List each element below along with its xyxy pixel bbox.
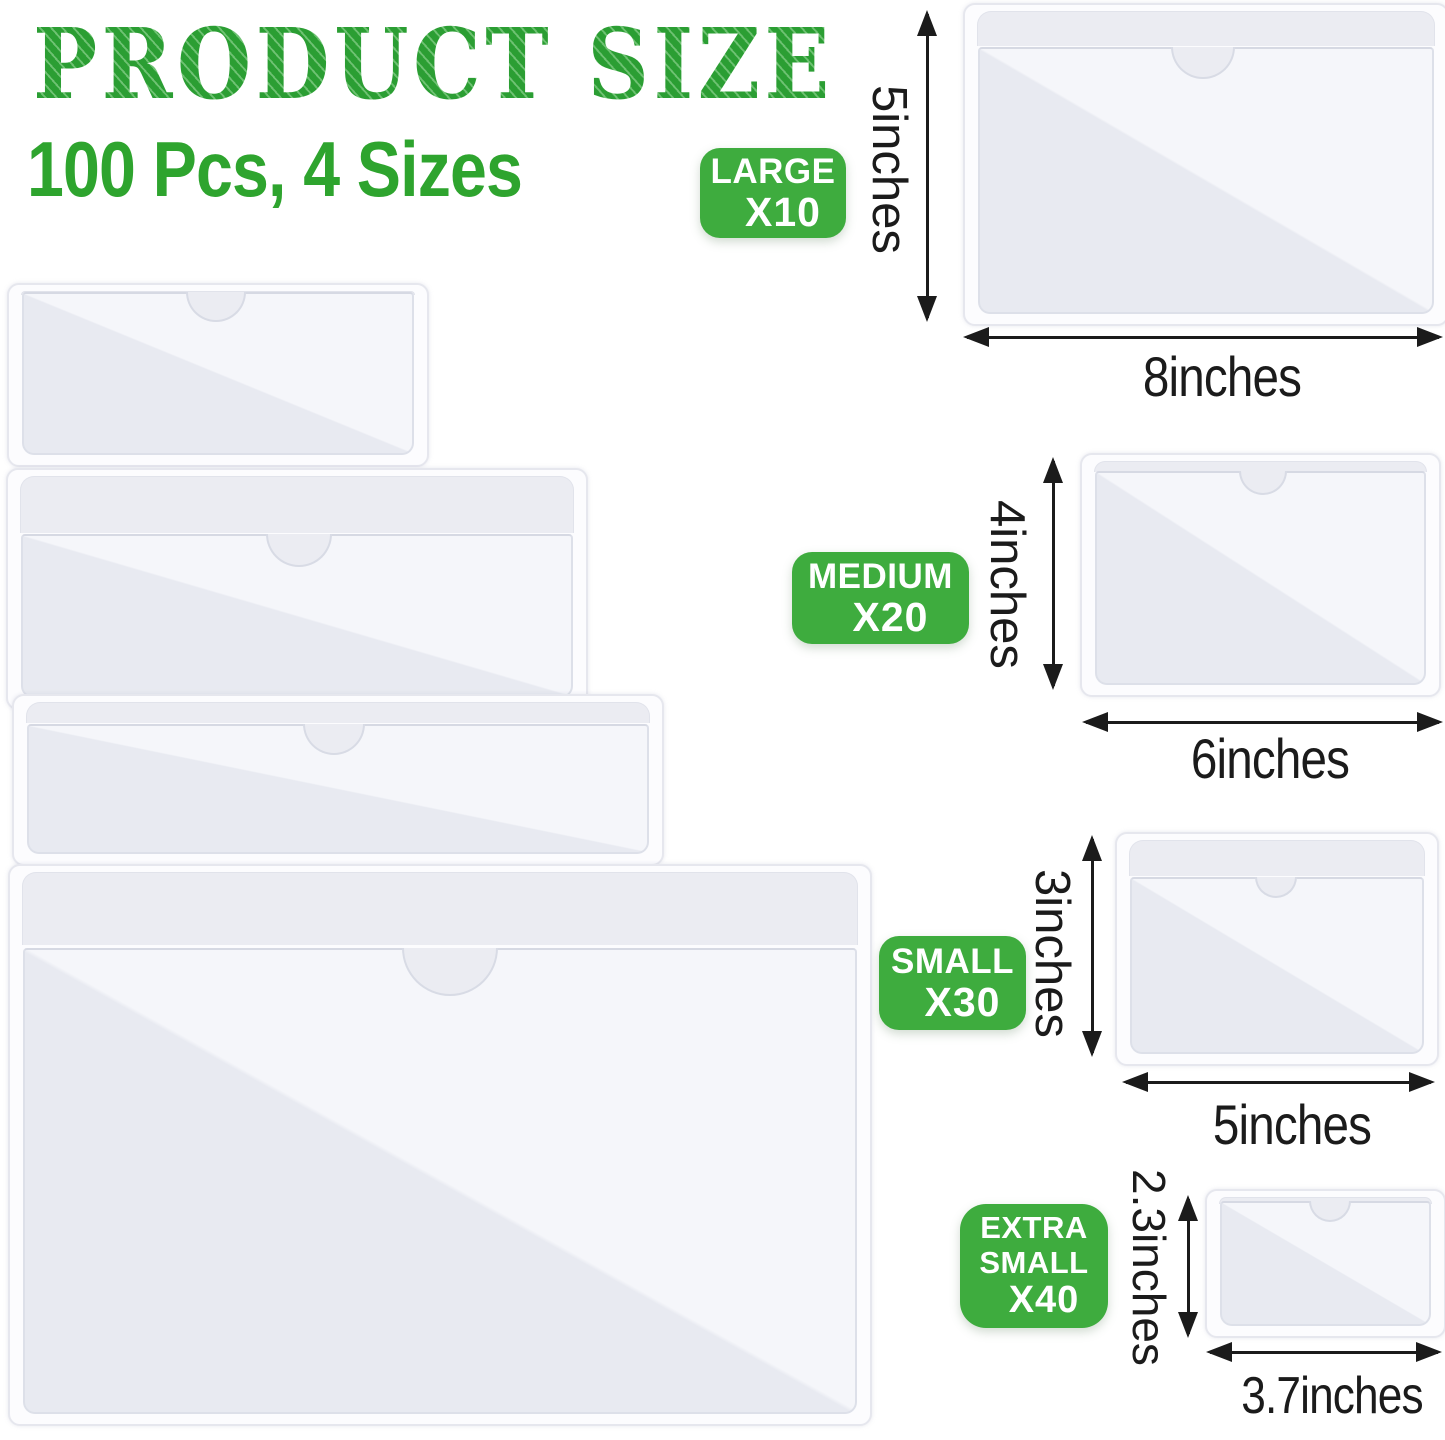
height-dimension-label-medium: 4inches <box>976 498 1038 670</box>
pocket-thumb-notch <box>266 534 332 567</box>
pocket-stack-photo-4 <box>8 864 872 1426</box>
page-title: PRODUCT SIZE <box>33 14 834 116</box>
size-badge-extra-small: EXTRA SMALL X40 <box>960 1204 1108 1328</box>
width-dimension-label-medium: 6inches <box>1100 726 1440 791</box>
vertical-dimension-arrow <box>1042 457 1064 690</box>
vertical-dimension-arrow <box>1177 1195 1199 1338</box>
pocket-front-face <box>978 47 1434 314</box>
pocket-stack-photo-1 <box>7 283 429 467</box>
height-dimension-label-small: 3inches <box>1021 868 1083 1038</box>
size-badge-label: EXTRA <box>980 1211 1088 1246</box>
pocket-diagram-medium <box>1080 453 1441 697</box>
horizontal-dimension-arrow <box>1122 1071 1435 1093</box>
pocket-front-face <box>1130 877 1424 1054</box>
pocket-adhesive-flap <box>977 11 1435 46</box>
width-dimension-label-small: 5inches <box>1122 1092 1445 1157</box>
vertical-dimension-arrow <box>916 10 938 322</box>
size-badge-count: X30 <box>925 981 1001 1024</box>
pocket-front-face <box>21 534 573 698</box>
size-badge-count: X10 <box>745 191 821 234</box>
size-badge-label: LARGE <box>711 152 836 191</box>
pocket-stack-photo-2 <box>6 468 588 710</box>
pocket-diagram-large <box>963 3 1445 326</box>
size-badge-large: LARGE X10 <box>700 148 846 238</box>
pocket-thumb-notch <box>1239 471 1287 495</box>
pocket-front-face <box>23 948 857 1414</box>
pocket-adhesive-flap <box>1129 840 1425 876</box>
pocket-diagram-extra-small <box>1205 1189 1445 1338</box>
pocket-front-face <box>22 292 414 455</box>
pocket-front-face <box>1095 471 1426 685</box>
size-badge-count: X40 <box>1009 1281 1080 1321</box>
horizontal-dimension-arrow <box>1206 1341 1442 1363</box>
pocket-thumb-notch <box>1309 1201 1351 1222</box>
pocket-adhesive-flap <box>26 702 650 723</box>
pocket-front-face <box>1220 1201 1431 1326</box>
pocket-thumb-notch <box>402 948 498 996</box>
subtitle: 100 Pcs, 4 Sizes <box>27 124 522 215</box>
pocket-thumb-notch <box>1171 47 1235 79</box>
vertical-dimension-arrow <box>1081 835 1103 1057</box>
pocket-thumb-notch <box>303 724 365 755</box>
size-badge-label: MEDIUM <box>808 557 953 596</box>
size-badge-medium: MEDIUM X20 <box>792 552 969 644</box>
size-badge-label: SMALL <box>979 1246 1088 1281</box>
pocket-adhesive-flap <box>22 872 858 945</box>
size-badge-count: X20 <box>853 596 929 639</box>
pocket-front-face <box>27 724 649 854</box>
product-size-infographic: PRODUCT SIZE 100 Pcs, 4 Sizes LARGE X10 … <box>0 0 1445 1440</box>
pocket-thumb-notch <box>186 292 246 322</box>
width-dimension-label-extra-small: 3.7inches <box>1162 1366 1445 1426</box>
size-badge-small: SMALL X30 <box>879 936 1026 1030</box>
pocket-diagram-small <box>1115 832 1439 1066</box>
pocket-adhesive-flap <box>20 476 574 533</box>
height-dimension-label-extra-small: 2.3inches <box>1118 1160 1180 1374</box>
pocket-stack-photo-3 <box>12 694 664 866</box>
pocket-thumb-notch <box>1255 877 1297 898</box>
width-dimension-label-large: 8inches <box>1052 344 1392 409</box>
size-badge-label: SMALL <box>891 942 1014 981</box>
height-dimension-label-large: 5inches <box>858 80 920 258</box>
